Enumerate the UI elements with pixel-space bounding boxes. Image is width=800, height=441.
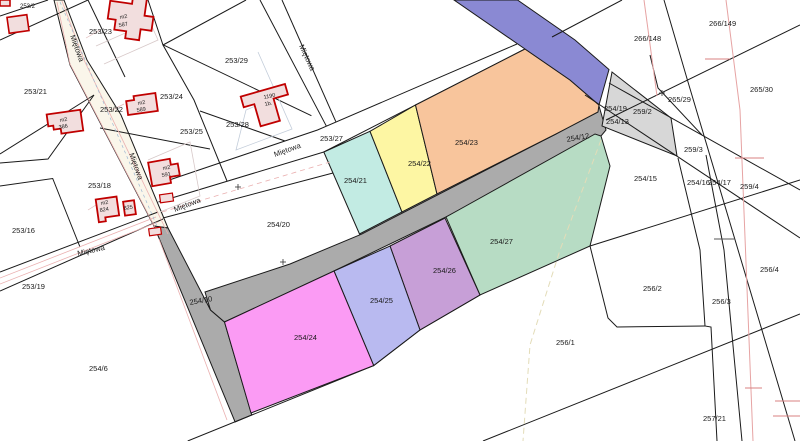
svg-text:259/4: 259/4 [740,182,759,191]
svg-text:254/27: 254/27 [490,237,513,246]
svg-text:265/29: 265/29 [668,95,691,104]
svg-text:254/17: 254/17 [708,178,731,187]
svg-text:253/24: 253/24 [160,92,183,101]
svg-text:256/2: 256/2 [643,284,662,293]
svg-text:253/22: 253/22 [100,105,123,114]
svg-text:253/16: 253/16 [12,226,35,235]
svg-text:253/23: 253/23 [89,27,112,36]
svg-text:259/3: 259/3 [684,145,703,154]
svg-text:254/24: 254/24 [294,333,317,342]
svg-text:254/25: 254/25 [370,296,393,305]
svg-text:254/15: 254/15 [634,174,657,183]
svg-text:256/3: 256/3 [712,297,731,306]
svg-text:253/21: 253/21 [24,87,47,96]
svg-text:266/148: 266/148 [634,34,661,43]
svg-text:253/28: 253/28 [226,120,249,129]
svg-text:253/2: 253/2 [20,4,36,10]
svg-text:253/18: 253/18 [88,181,111,190]
svg-text:254/13: 254/13 [606,117,629,126]
svg-text:253/25: 253/25 [180,127,203,136]
svg-text:259/2: 259/2 [633,107,652,116]
svg-text:253/19: 253/19 [22,282,45,291]
svg-text:254/19: 254/19 [604,104,627,113]
svg-text:254/23: 254/23 [455,138,478,147]
svg-text:253/27: 253/27 [320,134,343,143]
svg-text:254/21: 254/21 [344,176,367,185]
svg-text:256/4: 256/4 [760,265,779,274]
svg-text:254/26: 254/26 [433,266,456,275]
svg-text:257/21: 257/21 [703,414,726,423]
svg-text:256/1: 256/1 [556,338,575,347]
svg-text:254/22: 254/22 [408,159,431,168]
svg-text:253/29: 253/29 [225,56,248,65]
svg-text:254/20: 254/20 [267,220,290,229]
svg-text:266/149: 266/149 [709,19,736,28]
svg-text:254/16: 254/16 [687,178,710,187]
svg-text:254/6: 254/6 [89,364,108,373]
svg-text:265/30: 265/30 [750,85,773,94]
